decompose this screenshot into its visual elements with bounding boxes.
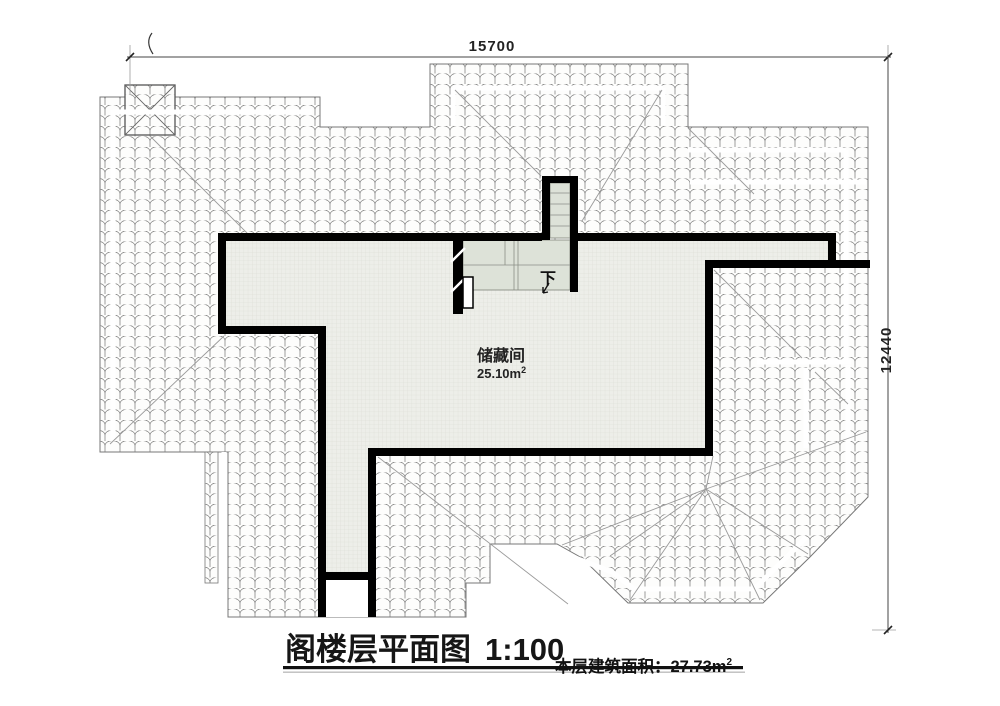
floor-area-value: 27.73m <box>671 658 727 676</box>
dimension-top-value: 15700 <box>469 38 516 55</box>
stair-flight <box>550 183 570 238</box>
eave-strip <box>205 452 218 583</box>
plan-title-scale: 1:100 <box>485 632 564 667</box>
room-name: 储藏间 <box>476 346 525 365</box>
area-note: 本层建筑面积：27.73m2 <box>555 656 732 676</box>
plan-title-text: 阁楼层平面图 <box>285 632 471 667</box>
floor-plan-sheet: 下 储藏间 25.10m2 15700 12440 阁楼层平面图1:1 <box>0 0 1000 706</box>
floor-area-note: 本层建筑面积：27.73m2 <box>555 656 732 676</box>
floor-area-sup: 2 <box>726 657 732 668</box>
door-leaf <box>463 277 473 308</box>
dimension-right: 12440 <box>872 55 896 634</box>
room-label: 储藏间 25.10m2 <box>476 346 526 381</box>
floor-plan-svg: 下 储藏间 25.10m2 15700 12440 阁楼层平面图1:1 <box>0 0 1000 706</box>
room-area: 25.10m2 <box>477 365 526 381</box>
room-area-sup: 2 <box>521 365 526 375</box>
shaft-opening <box>326 580 368 617</box>
room-area-value: 25.10m <box>477 366 521 381</box>
dimension-right-value: 12440 <box>878 327 895 374</box>
plan-title: 阁楼层平面图1:100 <box>285 632 564 667</box>
floor-area-label: 本层建筑面积： <box>555 656 671 676</box>
